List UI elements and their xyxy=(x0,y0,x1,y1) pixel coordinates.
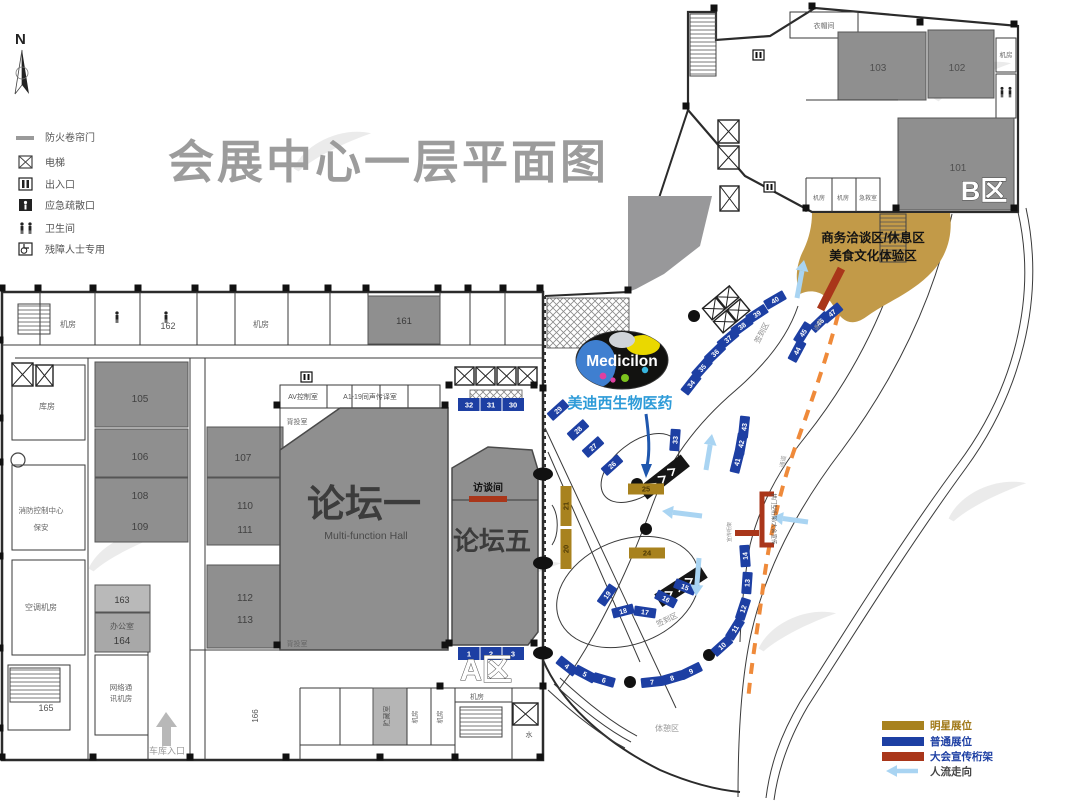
column-marker xyxy=(446,640,453,647)
restroom-icon xyxy=(28,222,31,225)
column-marker xyxy=(192,285,199,292)
column-marker xyxy=(446,382,453,389)
label-room_labels-7: 108 xyxy=(132,491,149,502)
label-room_labels-11: 111 xyxy=(237,525,253,536)
pillar-dot xyxy=(688,310,700,322)
column-marker xyxy=(683,103,690,110)
label-zones-truss: 宣传桁架 xyxy=(726,522,733,542)
legend-bottom-label: 明星展位 xyxy=(930,719,972,732)
booth-number: 30 xyxy=(509,401,517,410)
column-marker xyxy=(540,385,547,392)
label-room_labels-12: 112 xyxy=(237,593,253,604)
gray-wedge xyxy=(628,196,712,292)
column-marker xyxy=(537,754,544,761)
column-marker xyxy=(90,285,97,292)
label-room_labels-28: 101 xyxy=(950,163,967,174)
label-room_labels-14: 消防控制中心 xyxy=(19,505,64,515)
label-room_labels-29: 102 xyxy=(949,63,966,74)
column-marker xyxy=(90,754,97,761)
label-halls-interview_room: 访谈间 xyxy=(473,481,503,494)
column-marker xyxy=(363,285,370,292)
room-wc xyxy=(996,74,1016,118)
booth-number: 42 xyxy=(738,440,746,449)
label-room_labels-22: 165 xyxy=(38,703,53,713)
label-room_labels-31: 衣帽间 xyxy=(814,21,835,30)
column-marker xyxy=(0,459,4,466)
pillar-dot xyxy=(640,523,652,535)
medicilon-pointer-head xyxy=(641,464,652,478)
column-marker xyxy=(625,287,632,294)
legend-top-label: 出入口 xyxy=(45,178,75,191)
booth-standard: 27 xyxy=(581,436,604,458)
column-marker xyxy=(711,5,718,12)
legend-top-label: 残障人士专用 xyxy=(45,243,105,256)
column-marker xyxy=(531,382,538,389)
flow-arrow-head xyxy=(662,506,674,519)
booth-standard: 40 xyxy=(763,290,787,310)
truss-interview xyxy=(469,496,507,502)
column-marker xyxy=(283,754,290,761)
label-zones-checkin: 签到区 xyxy=(654,610,679,629)
label-zones-business_line1: 商务洽谈区/休息区 xyxy=(821,230,925,245)
stairs xyxy=(690,14,716,76)
legend-top-label: 电梯 xyxy=(45,156,65,169)
label-zones-passage: 通道 xyxy=(778,455,788,468)
booth-number: 33 xyxy=(672,436,680,444)
column-marker xyxy=(0,337,4,344)
label-room_labels-6: 106 xyxy=(132,452,149,463)
garage-arrow-icon xyxy=(156,712,177,746)
column-marker xyxy=(540,683,547,690)
column-marker xyxy=(377,754,384,761)
legend-bottom-label: 普通展位 xyxy=(930,735,972,748)
room-112-113 xyxy=(207,565,283,648)
column-marker xyxy=(230,285,237,292)
booth-star: 24 xyxy=(629,548,665,559)
booth-star: 20 xyxy=(561,529,572,569)
booth-standard: 29 xyxy=(546,399,569,421)
accessible-icon xyxy=(19,243,32,255)
label-halls-forum5-name: 论坛五 xyxy=(453,526,531,556)
pillar-oval xyxy=(533,557,553,570)
elevator-icon xyxy=(19,156,32,168)
page-title: 会展中心一层平面图 xyxy=(168,136,609,188)
flow-arrow xyxy=(783,519,808,522)
restroom-icon xyxy=(1009,87,1012,90)
booth-number: 43 xyxy=(741,423,749,432)
standard-booth-swatch xyxy=(882,737,924,746)
booth-standard: 44 xyxy=(787,339,806,363)
column-marker xyxy=(437,683,444,690)
column-marker xyxy=(0,645,4,652)
column-marker xyxy=(442,402,449,409)
column-marker xyxy=(0,754,6,761)
booth-number: 31 xyxy=(487,401,495,410)
stairs xyxy=(460,707,502,737)
label-room_labels-13: 113 xyxy=(237,615,253,626)
pillar-dot xyxy=(624,676,636,688)
entrance-icon xyxy=(19,178,32,190)
booth-number: 25 xyxy=(642,485,650,494)
label-room_labels-15: 保安 xyxy=(34,522,49,532)
booth-standard: 12 xyxy=(735,597,751,621)
booth-standard: 28 xyxy=(566,419,589,441)
label-room_labels-36: 水 xyxy=(526,730,533,739)
booth-number: 13 xyxy=(744,579,752,587)
label-zones-garage_entrance: 车库入口 xyxy=(149,745,185,756)
label-halls-zone_b: B区 xyxy=(961,176,1008,206)
column-marker xyxy=(1011,205,1018,212)
booth-star: 21 xyxy=(561,486,572,526)
column-marker xyxy=(0,415,4,422)
column-marker xyxy=(435,285,442,292)
label-room_labels-37: 机房 xyxy=(470,692,484,701)
booth-number: 24 xyxy=(643,549,652,558)
flow-arrow xyxy=(697,558,699,585)
label-medicilon-logo: Medicilon xyxy=(586,353,657,370)
label-room_labels-20: 网络通 xyxy=(110,682,133,692)
truss-swatch xyxy=(882,752,924,761)
label-room_labels-26: 背投室 xyxy=(287,417,308,426)
booth-standard: 17 xyxy=(633,606,656,619)
label-room_labels-19: 164 xyxy=(114,636,131,647)
column-marker xyxy=(283,285,290,292)
restroom-icon xyxy=(164,311,167,314)
legend-top-label: 卫生间 xyxy=(45,222,75,235)
emergency-exit-icon xyxy=(19,199,32,211)
column-marker xyxy=(274,402,281,409)
flow-arrow xyxy=(673,512,702,516)
column-marker xyxy=(0,285,6,292)
room-107 xyxy=(207,427,283,477)
label-room_labels-17: 163 xyxy=(114,595,129,605)
booth-star: 25 xyxy=(628,484,664,495)
column-marker xyxy=(0,553,4,560)
column-marker xyxy=(465,285,472,292)
label-halls-forum1-subtitle: Multi-function Hall xyxy=(324,530,407,542)
label-room_labels-18: 办公室 xyxy=(110,621,134,631)
column-marker xyxy=(537,285,544,292)
compass-n-label: N xyxy=(15,31,26,48)
label-room_labels-3: 161 xyxy=(396,316,412,327)
stairs xyxy=(10,668,60,702)
column-marker xyxy=(893,205,900,212)
booth-standard: 39 xyxy=(745,304,769,324)
column-marker xyxy=(809,3,816,10)
booth-standard: 6 xyxy=(592,672,616,688)
booth-standard: 45 xyxy=(793,321,813,345)
legend-bottom-label: 人流走向 xyxy=(930,765,972,778)
flow-arrow-head xyxy=(704,434,717,446)
label-room_labels-9: 107 xyxy=(235,453,252,464)
column-marker xyxy=(35,285,42,292)
label-zones-rest_area: 体憩区 xyxy=(655,723,679,733)
booth-standard: 14 xyxy=(739,545,751,568)
pillar-oval xyxy=(533,468,553,481)
floor-plan-svg: 1233231304567891011121314151617181926272… xyxy=(0,0,1080,807)
column-marker xyxy=(0,725,4,732)
label-zones-business_line2: 美食文化体验区 xyxy=(829,248,917,263)
pillar-oval xyxy=(533,647,553,660)
medicilon-pointer-arrow xyxy=(646,414,649,466)
restroom-icon xyxy=(20,222,31,234)
booth-standard: 13 xyxy=(741,572,753,595)
column-marker xyxy=(917,19,924,26)
label-zones-arch_truss: 拱门型桁架/大会宣传 xyxy=(770,493,778,545)
label-room_labels-34: 机房 xyxy=(837,194,849,202)
booth-standard: 43 xyxy=(738,416,750,439)
entrance-icon xyxy=(764,182,775,192)
booth-number: 14 xyxy=(742,552,750,560)
restroom-icon xyxy=(20,222,23,225)
label-medicilon-caption: 美迪西生物医药 xyxy=(567,394,672,412)
booth-number: 17 xyxy=(640,609,649,617)
booth-number: 20 xyxy=(562,545,571,553)
label-halls-forum1-name: 论坛一 xyxy=(307,484,421,526)
booth-standard: 33 xyxy=(669,429,681,452)
label-room_labels-8: 109 xyxy=(132,522,149,533)
legend-top-label: 防火卷帘门 xyxy=(45,131,95,144)
label-room_labels-10: 110 xyxy=(237,501,253,512)
hall-forum1 xyxy=(280,408,448,650)
label-room_labels-5: 105 xyxy=(132,394,149,405)
flow-arrow-head xyxy=(886,765,897,777)
booth-standard: 9 xyxy=(679,662,703,681)
stairs xyxy=(18,304,50,334)
entrance-icon xyxy=(301,372,312,382)
label-room_labels-0: 机房 xyxy=(60,319,76,329)
booth-number: 21 xyxy=(562,502,571,510)
booth-standard: 11 xyxy=(725,617,745,641)
booth-standard: 7 xyxy=(641,676,664,688)
label-room_labels-21: 讯机房 xyxy=(110,693,133,703)
label-room_labels-40: 贮藏室 xyxy=(382,706,391,727)
label-room_labels-32: 机房 xyxy=(1000,50,1013,59)
column-marker xyxy=(803,205,810,212)
star-booth-swatch xyxy=(882,721,924,730)
watermark-swoosh xyxy=(753,606,841,652)
label-room_labels-16: 空调机房 xyxy=(25,602,57,612)
label-halls-zone_a: A区 xyxy=(460,654,512,687)
booth-bar: 323130 xyxy=(458,398,524,411)
entrance-icon xyxy=(753,50,764,60)
floor-plan-page: 1233231304567891011121314151617181926272… xyxy=(0,0,1080,807)
label-room_labels-1: 162 xyxy=(160,321,175,331)
label-room_labels-39: 机房 xyxy=(435,711,444,724)
column-marker xyxy=(325,285,332,292)
label-room_labels-2: 机房 xyxy=(253,319,269,329)
column-marker xyxy=(135,285,142,292)
label-room_labels-35: 急救室 xyxy=(859,194,877,202)
legend-bottom-label: 大会宣传桁架 xyxy=(930,750,993,763)
label-room_labels-25: A1-19同声传译室 xyxy=(343,392,397,401)
watermark-swoosh xyxy=(943,476,1031,522)
column-marker xyxy=(452,754,459,761)
north-compass: N xyxy=(15,31,29,94)
concourse xyxy=(540,110,1033,800)
column-marker xyxy=(274,642,281,649)
legend-top-label: 应急疏散口 xyxy=(45,199,95,212)
restroom-icon xyxy=(115,311,118,314)
column-marker xyxy=(187,754,194,761)
label-room_labels-24: AV控制室 xyxy=(288,392,318,401)
label-zones-checkin: 签到区 xyxy=(752,320,772,345)
label-room_labels-23: 166 xyxy=(251,709,260,723)
flow-arrow xyxy=(706,445,710,470)
column-marker xyxy=(531,640,538,647)
label-room_labels-27: 背投室 xyxy=(287,639,308,648)
restroom-icon xyxy=(1001,87,1004,90)
label-room_labels-33: 机房 xyxy=(813,194,825,202)
column-marker xyxy=(1011,21,1018,28)
label-room_labels-38: 机房 xyxy=(410,711,419,724)
label-room_labels-30: 103 xyxy=(870,63,887,74)
booth-number: 32 xyxy=(465,401,473,410)
label-room_labels-4: 库房 xyxy=(39,401,55,411)
booth-standard: 18 xyxy=(611,603,635,618)
column-marker xyxy=(500,285,507,292)
